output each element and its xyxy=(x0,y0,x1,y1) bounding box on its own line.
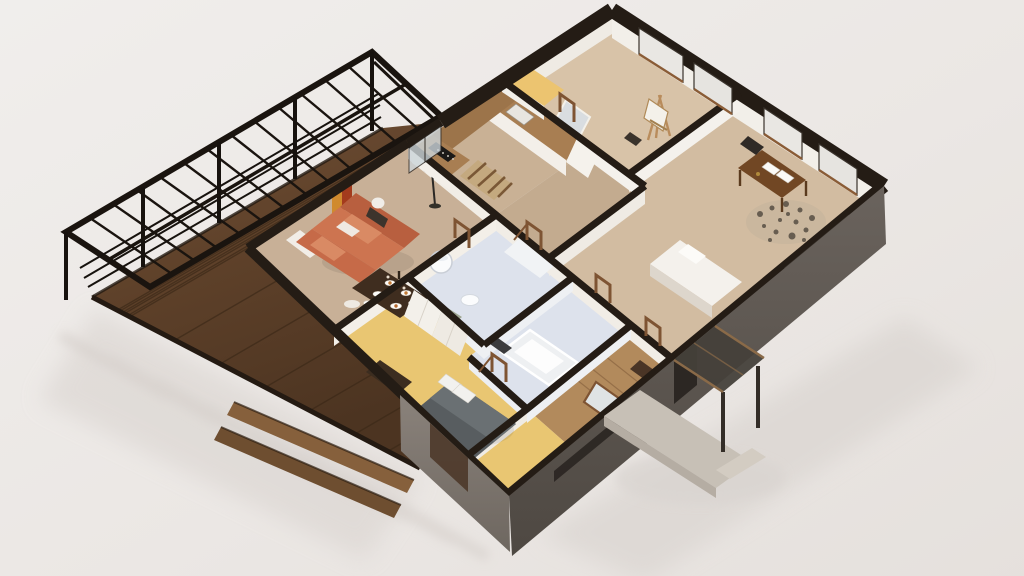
planter-sphere xyxy=(372,198,385,209)
floorplan-3d-render xyxy=(0,0,1024,576)
render-viewport xyxy=(0,0,1024,576)
floor-lamp-base xyxy=(429,204,441,209)
side-table xyxy=(344,300,360,308)
toilet xyxy=(461,295,479,306)
desk-lamp-dot xyxy=(756,172,760,176)
